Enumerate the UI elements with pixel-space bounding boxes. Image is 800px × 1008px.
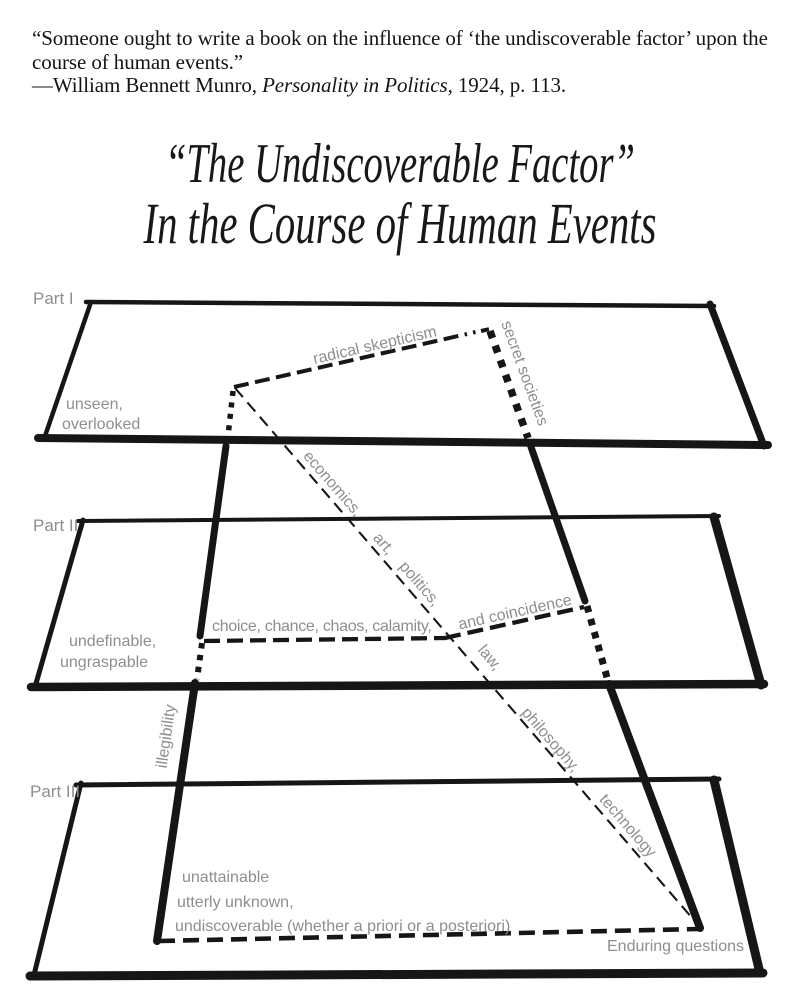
svg-text:ungraspable: ungraspable [60, 654, 148, 671]
svg-text:utterly unknown,: utterly unknown, [177, 894, 294, 911]
svg-text:overlooked: overlooked [62, 416, 140, 433]
svg-text:economics,: economics, [299, 448, 365, 520]
svg-text:Part II: Part II [33, 516, 78, 535]
svg-text:unattainable: unattainable [182, 869, 269, 886]
svg-text:radical skepticism: radical skepticism [312, 323, 439, 368]
svg-text:undiscoverable (whether a prio: undiscoverable (whether a priori or a po… [175, 918, 510, 935]
svg-text:illegibility: illegibility [154, 703, 180, 769]
svg-text:and coincidence: and coincidence [457, 592, 574, 634]
svg-text:Part III: Part III [30, 782, 80, 801]
svg-text:choice, chance, chaos, calamit: choice, chance, chaos, calamity, [212, 618, 432, 635]
svg-text:undefinable,: undefinable, [69, 633, 156, 650]
svg-text:art,: art, [369, 530, 397, 559]
svg-text:politics,: politics, [395, 558, 443, 609]
svg-text:unseen,: unseen, [66, 396, 123, 413]
svg-text:philosophy,: philosophy, [518, 704, 583, 775]
svg-text:Enduring questions: Enduring questions [607, 938, 744, 955]
svg-text:secret societies: secret societies [497, 319, 551, 428]
svg-text:Part I: Part I [33, 289, 74, 308]
